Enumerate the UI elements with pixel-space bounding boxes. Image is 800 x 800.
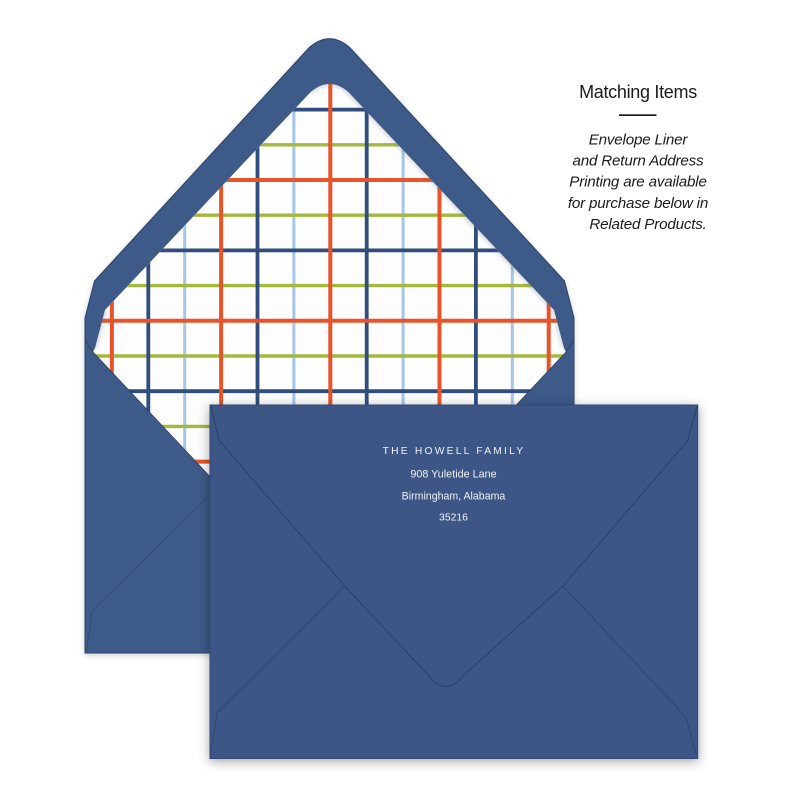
svg-text:for purchase below in: for purchase below in <box>568 195 708 212</box>
svg-text:THE HOWELL FAMILY: THE HOWELL FAMILY <box>383 446 526 457</box>
svg-text:Printing are available: Printing are available <box>569 174 706 191</box>
svg-text:Matching Items: Matching Items <box>579 82 697 102</box>
svg-text:35216: 35216 <box>439 513 468 524</box>
svg-text:Envelope Liner: Envelope Liner <box>589 132 689 149</box>
svg-text:908 Yuletide Lane: 908 Yuletide Lane <box>410 469 496 481</box>
svg-text:and Return Address: and Return Address <box>573 153 705 170</box>
svg-text:Related Products.: Related Products. <box>589 216 706 233</box>
svg-text:Birmingham, Alabama: Birmingham, Alabama <box>402 490 506 502</box>
